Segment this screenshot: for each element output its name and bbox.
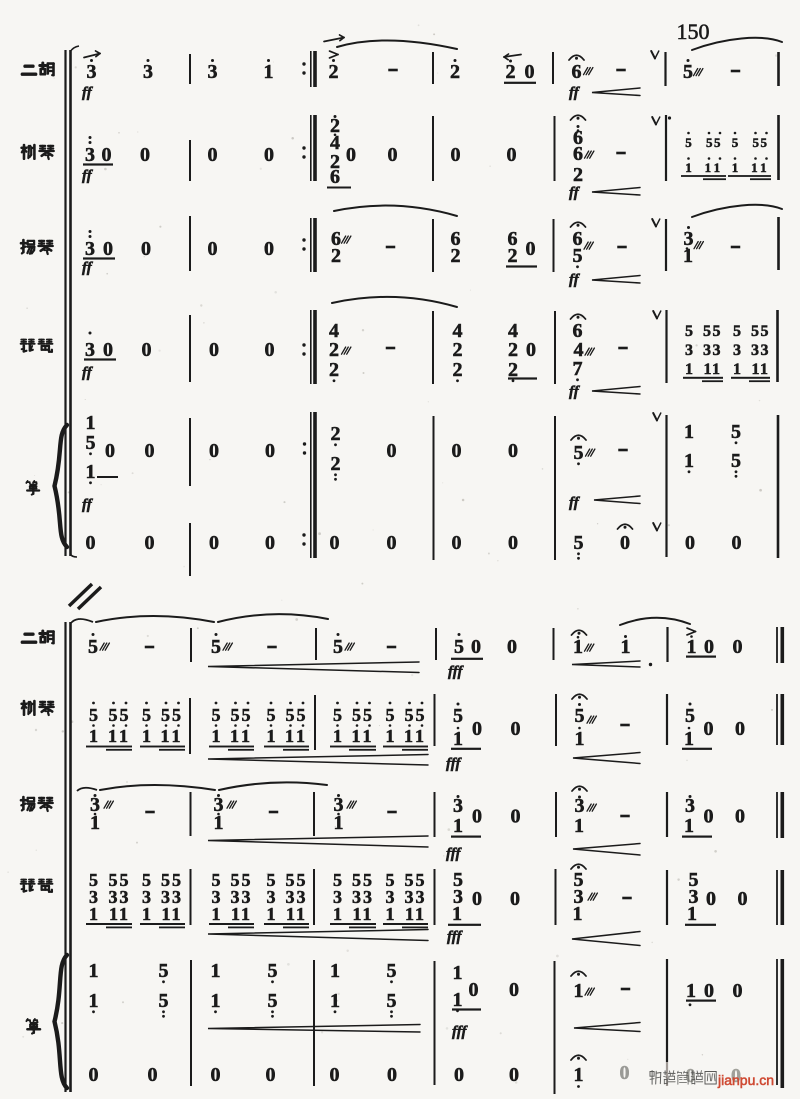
svg-text:1: 1 (89, 960, 99, 982)
svg-text:2: 2 (331, 453, 341, 475)
svg-text:1: 1 (453, 728, 463, 750)
svg-text:0: 0 (208, 238, 218, 260)
svg-text:0: 0 (469, 979, 479, 1001)
svg-text:5: 5 (685, 705, 695, 727)
svg-text:0: 0 (472, 806, 482, 828)
svg-text:33: 33 (703, 342, 722, 359)
svg-text:5: 5 (212, 705, 221, 725)
svg-text:11: 11 (404, 726, 427, 746)
svg-text:0: 0 (89, 1064, 99, 1086)
svg-text:0: 0 (685, 532, 695, 554)
svg-text:11: 11 (109, 904, 130, 924)
svg-text:11: 11 (231, 904, 252, 924)
svg-text:0: 0 (508, 532, 518, 554)
svg-text:3: 3 (143, 61, 153, 83)
svg-text:1: 1 (330, 960, 340, 982)
svg-text:0: 0 (704, 806, 714, 828)
svg-text:0: 0 (451, 144, 461, 166)
svg-text:1: 1 (211, 990, 221, 1012)
svg-text:2: 2 (450, 61, 460, 83)
svg-text:2: 2 (506, 61, 516, 83)
svg-text:0: 0 (103, 339, 113, 361)
svg-text:5: 5 (387, 990, 397, 1012)
svg-text:11: 11 (285, 726, 308, 746)
svg-text:0: 0 (208, 144, 218, 166)
svg-text:1: 1 (621, 636, 631, 658)
svg-text:1: 1 (684, 728, 694, 750)
svg-text:1: 1 (86, 412, 96, 434)
svg-text:7: 7 (573, 358, 583, 380)
svg-text:2: 2 (329, 339, 339, 361)
svg-text:1: 1 (685, 361, 693, 378)
svg-text:3: 3 (685, 342, 693, 359)
svg-text:5: 5 (268, 990, 278, 1012)
svg-text:2: 2 (508, 245, 518, 267)
svg-text:11: 11 (286, 904, 307, 924)
svg-text:5: 5 (142, 705, 151, 725)
svg-text:3: 3 (208, 61, 218, 83)
svg-text:0: 0 (454, 1064, 464, 1086)
svg-text:1: 1 (574, 1064, 584, 1086)
svg-text:1: 1 (142, 904, 151, 924)
svg-text:0: 0 (266, 1064, 276, 1086)
svg-text:2: 2 (573, 164, 583, 186)
svg-text:11: 11 (405, 904, 426, 924)
svg-text:55: 55 (751, 323, 770, 340)
svg-text:6: 6 (573, 143, 583, 165)
svg-text:1: 1 (333, 726, 342, 746)
svg-text:11: 11 (705, 160, 724, 175)
svg-text:0: 0 (103, 238, 113, 260)
svg-text:fff: fff (446, 846, 462, 862)
svg-text:fff: fff (448, 664, 464, 680)
svg-text:1: 1 (732, 160, 739, 175)
svg-text:150: 150 (677, 19, 710, 44)
svg-text:1: 1 (574, 980, 584, 1002)
svg-text:0: 0 (105, 440, 115, 462)
svg-text:6: 6 (330, 166, 340, 188)
svg-text:11: 11 (230, 726, 253, 746)
svg-text:1: 1 (573, 903, 583, 925)
svg-text:0: 0 (620, 532, 630, 554)
svg-text:5: 5 (387, 960, 397, 982)
svg-text:0: 0 (511, 718, 521, 740)
svg-text:1: 1 (574, 815, 584, 837)
svg-text:55: 55 (706, 135, 722, 150)
svg-text:1: 1 (386, 726, 395, 746)
svg-text:5: 5 (159, 960, 169, 982)
svg-text:0: 0 (387, 440, 397, 462)
svg-text:1: 1 (685, 160, 692, 175)
svg-text:0: 0 (209, 440, 219, 462)
svg-text:1: 1 (333, 904, 342, 924)
svg-text:1: 1 (452, 903, 462, 925)
svg-text:0: 0 (264, 238, 274, 260)
svg-text:2: 2 (331, 423, 341, 445)
svg-text:5: 5 (267, 705, 276, 725)
svg-text:11: 11 (703, 361, 721, 378)
svg-text:55: 55 (352, 705, 374, 725)
svg-text:3: 3 (85, 144, 95, 166)
svg-text:6: 6 (572, 61, 582, 83)
svg-text:0: 0 (509, 979, 519, 1001)
svg-text:0: 0 (733, 980, 743, 1002)
svg-text:0: 0 (387, 532, 397, 554)
svg-text:2: 2 (329, 359, 339, 381)
svg-text:0: 0 (102, 144, 112, 166)
svg-text:5: 5 (333, 705, 342, 725)
svg-text:5: 5 (732, 135, 739, 150)
svg-text:55: 55 (161, 705, 183, 725)
svg-text:1: 1 (142, 726, 151, 746)
svg-text:0: 0 (472, 888, 482, 910)
svg-text:5: 5 (573, 245, 583, 267)
svg-text:0: 0 (507, 636, 517, 658)
svg-text:5: 5 (89, 705, 98, 725)
svg-text:0: 0 (732, 532, 742, 554)
svg-text:1: 1 (686, 980, 696, 1002)
svg-text:1: 1 (386, 904, 395, 924)
svg-text:2: 2 (331, 245, 341, 267)
svg-text:1: 1 (211, 960, 221, 982)
svg-text:0: 0 (735, 718, 745, 740)
svg-text:5: 5 (731, 421, 741, 443)
svg-text:0: 0 (209, 532, 219, 554)
svg-text:0: 0 (733, 636, 743, 658)
svg-text:0: 0 (620, 1062, 630, 1084)
svg-text:2: 2 (453, 359, 463, 381)
svg-text:1: 1 (86, 461, 96, 483)
svg-text:1: 1 (687, 636, 697, 658)
svg-text:33: 33 (751, 342, 770, 359)
svg-text:1: 1 (684, 815, 694, 837)
svg-text:3: 3 (85, 339, 95, 361)
svg-text:fff: fff (446, 756, 462, 772)
svg-text:0: 0 (388, 144, 398, 166)
svg-text:0: 0 (265, 339, 275, 361)
svg-text:5: 5 (454, 636, 464, 658)
svg-text:0: 0 (265, 532, 275, 554)
svg-text:0: 0 (509, 1064, 519, 1086)
svg-text:0: 0 (511, 806, 521, 828)
svg-text:55: 55 (109, 705, 131, 725)
svg-text:0: 0 (704, 980, 714, 1002)
svg-text:1: 1 (89, 726, 98, 746)
svg-text:5: 5 (159, 990, 169, 1012)
svg-text:11: 11 (161, 904, 182, 924)
svg-text:5: 5 (88, 636, 98, 658)
svg-text:11: 11 (352, 904, 373, 924)
svg-text:2: 2 (508, 339, 518, 361)
svg-text:1: 1 (212, 904, 221, 924)
svg-text:1: 1 (687, 903, 697, 925)
svg-text:0: 0 (526, 238, 536, 260)
svg-text:0: 0 (452, 440, 462, 462)
svg-text:0: 0 (735, 806, 745, 828)
svg-text:5: 5 (574, 442, 584, 464)
svg-text:0: 0 (145, 440, 155, 462)
svg-text:1: 1 (453, 962, 463, 984)
svg-text:2: 2 (453, 339, 463, 361)
svg-text:11: 11 (751, 361, 769, 378)
svg-text:0: 0 (142, 339, 152, 361)
svg-text:1: 1 (330, 990, 340, 1012)
svg-text:fff: fff (447, 929, 463, 945)
svg-text:1: 1 (267, 904, 276, 924)
svg-text:2: 2 (329, 61, 339, 83)
svg-text:0: 0 (209, 339, 219, 361)
svg-text:0: 0 (86, 532, 96, 554)
svg-text:5: 5 (731, 450, 741, 472)
svg-text:0: 0 (265, 440, 275, 462)
svg-text:5: 5 (685, 323, 693, 340)
svg-text:1: 1 (89, 904, 98, 924)
svg-text:5: 5 (733, 323, 741, 340)
svg-text:0: 0 (148, 1064, 158, 1086)
svg-text:0: 0 (472, 718, 482, 740)
svg-text:5: 5 (453, 705, 463, 727)
svg-text:0: 0 (141, 238, 151, 260)
svg-text:1: 1 (684, 421, 694, 443)
svg-text:0: 0 (704, 718, 714, 740)
svg-text:3: 3 (685, 795, 695, 817)
svg-text:0: 0 (145, 532, 155, 554)
svg-text:5: 5 (268, 960, 278, 982)
svg-text:0: 0 (471, 636, 481, 658)
svg-text:1: 1 (267, 726, 276, 746)
svg-text:2: 2 (451, 245, 461, 267)
svg-text:55: 55 (231, 705, 253, 725)
svg-text:5: 5 (211, 636, 221, 658)
svg-text:3: 3 (733, 342, 741, 359)
svg-text:55: 55 (753, 135, 769, 150)
svg-text:5: 5 (574, 532, 584, 554)
svg-text:fff: fff (452, 1024, 468, 1040)
svg-text:11: 11 (160, 726, 183, 746)
svg-text:1: 1 (453, 989, 463, 1011)
svg-text:1: 1 (575, 728, 585, 750)
svg-text:0: 0 (706, 888, 716, 910)
svg-text:0: 0 (211, 1064, 221, 1086)
svg-text:5: 5 (575, 705, 585, 727)
svg-text:0: 0 (507, 144, 517, 166)
svg-text:0: 0 (738, 888, 748, 910)
svg-text:11: 11 (751, 160, 770, 175)
svg-text:0: 0 (330, 1064, 340, 1086)
svg-text:0: 0 (330, 532, 340, 554)
svg-text:1: 1 (212, 726, 221, 746)
svg-text:1: 1 (453, 815, 463, 837)
svg-text:5: 5 (683, 61, 693, 83)
svg-text:5: 5 (685, 135, 692, 150)
svg-text:1: 1 (684, 450, 694, 472)
svg-text:55: 55 (703, 323, 722, 340)
svg-text:1: 1 (573, 636, 583, 658)
svg-text:0: 0 (704, 636, 714, 658)
svg-text:3: 3 (85, 238, 95, 260)
svg-text:0: 0 (387, 1064, 397, 1086)
svg-text:1: 1 (89, 990, 99, 1012)
svg-text:55: 55 (405, 705, 427, 725)
svg-text:0: 0 (508, 440, 518, 462)
svg-text:0: 0 (510, 888, 520, 910)
svg-text:0: 0 (452, 532, 462, 554)
svg-text:5: 5 (86, 432, 96, 454)
svg-text:0: 0 (140, 144, 150, 166)
svg-text:11: 11 (351, 726, 374, 746)
svg-text:0: 0 (525, 61, 535, 83)
svg-text:1: 1 (733, 361, 741, 378)
svg-text:jianpu.cn: jianpu.cn (717, 1072, 774, 1088)
svg-text:0: 0 (526, 339, 536, 361)
svg-text:3: 3 (87, 61, 97, 83)
svg-text:1: 1 (264, 61, 274, 83)
svg-text:5: 5 (386, 705, 395, 725)
svg-text:3: 3 (453, 795, 463, 817)
svg-text:0: 0 (346, 144, 356, 166)
svg-text:55: 55 (286, 705, 308, 725)
svg-text:5: 5 (333, 636, 343, 658)
svg-text:0: 0 (264, 144, 274, 166)
svg-text:11: 11 (108, 726, 131, 746)
